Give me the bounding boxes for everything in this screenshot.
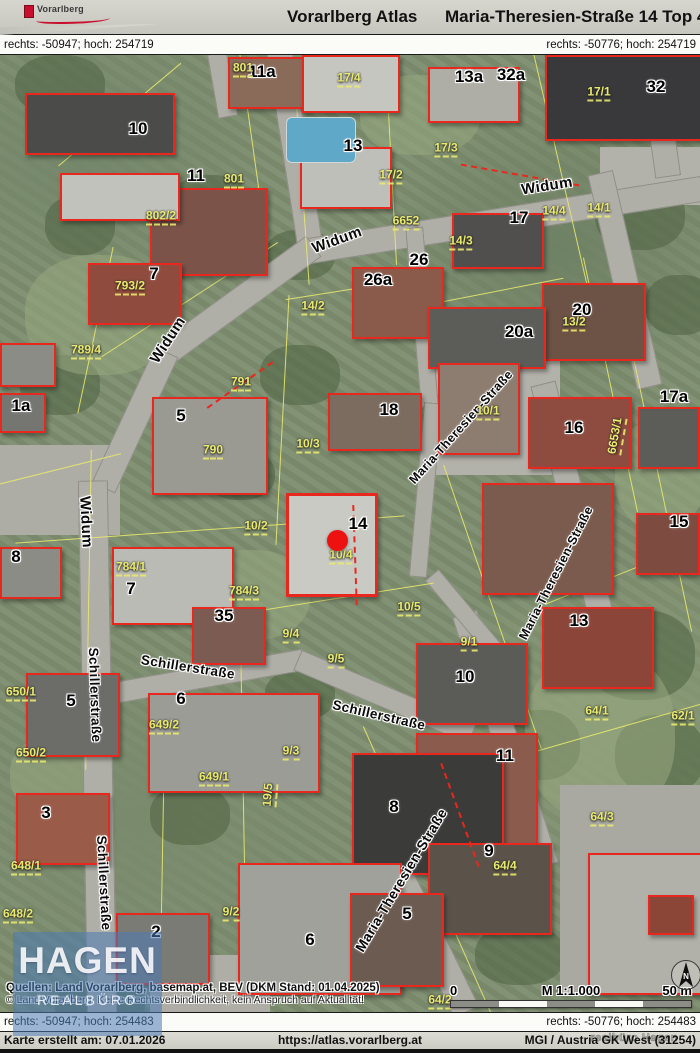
house-number-label: 17 [510, 208, 529, 228]
parcel-number-label: 64/2 [428, 993, 451, 1010]
parcel-number-label: 10/3 [296, 437, 319, 454]
building [638, 407, 700, 469]
building [25, 93, 175, 155]
logo-swoosh-icon [36, 15, 110, 24]
window-bottom-border [0, 1049, 700, 1053]
house-number-label: 11 [496, 746, 514, 766]
header: Vorarlberg Vorarlberg Atlas Maria-Theres… [0, 0, 700, 35]
parcel-number-label: 6652 [393, 214, 420, 231]
parcel-number-label: 648/2 [3, 907, 33, 924]
parcel-number-label: 801 [224, 172, 244, 189]
house-number-label: 8 [389, 797, 398, 817]
house-number-label: 11 [187, 166, 205, 186]
house-number-label: 18 [380, 400, 399, 420]
hagen-realbuero-watermark: HAGEN REALBÜRO [13, 932, 162, 1036]
parcel-number-label: 13/2 [562, 315, 585, 332]
house-number-label: 26 [410, 250, 429, 270]
coord-top-left: rechts: -50947; hoch: 254719 [4, 39, 154, 51]
scale-ratio-label: M 1:1.000 [450, 983, 692, 998]
parcel-number-label: 9/5 [328, 652, 345, 669]
coordinate-bar-top: rechts: -50947; hoch: 254719 rechts: -50… [0, 35, 700, 55]
house-number-label: 5 [176, 406, 185, 426]
house-number-label: 15 [670, 512, 689, 532]
house-number-label: 3 [41, 803, 50, 823]
building [0, 343, 56, 387]
parcel-number-label: 649/1 [199, 770, 229, 787]
logo-banner: Vorarlberg [0, 0, 280, 35]
parcel-number-label: 64/3 [590, 810, 613, 827]
parcel-number-label: 64/4 [493, 859, 516, 876]
app-title: Vorarlberg Atlas [287, 7, 417, 27]
north-arrow-icon: N [670, 958, 700, 996]
vegetation [645, 275, 700, 335]
parcel-number-label: 10/2 [244, 519, 267, 536]
scale-bar: 0 M 1:1.000 50 m [450, 983, 692, 1008]
building [328, 393, 422, 451]
house-number-label: 35 [215, 606, 234, 626]
parcel-number-label: 790 [203, 443, 223, 460]
parcel-number-label: 17/1 [587, 85, 610, 102]
house-number-label: 13a [455, 67, 483, 87]
parcel-number-label: 9/3 [283, 744, 300, 761]
coord-bottom-right: rechts: -50776; hoch: 254483 [546, 1016, 696, 1028]
house-number-label: 10 [129, 119, 148, 139]
house-number-label: 7 [149, 264, 158, 284]
parcel-number-label: 791 [231, 375, 251, 392]
parcel-number-label: 784/1 [116, 560, 146, 577]
parcel-number-label: 650/2 [16, 746, 46, 763]
building [542, 283, 646, 361]
parcel-number-label: 648/1 [11, 859, 41, 876]
parcel-number-label: 9/1 [461, 635, 478, 652]
parcel-number-label: 650/1 [6, 685, 36, 702]
house-number-label: 5 [402, 904, 411, 924]
parcel-number-label: 793/2 [115, 279, 145, 296]
building [648, 895, 694, 935]
house-number-label: 9 [484, 841, 493, 861]
building [26, 673, 120, 757]
parcel-number-label: 789/4 [71, 343, 101, 360]
house-number-label: 26a [364, 270, 392, 290]
parcel-number-label: 801 [233, 61, 253, 78]
logo-text: Vorarlberg [37, 4, 84, 14]
house-number-label: 8 [11, 547, 20, 567]
house-number-label: 10 [456, 667, 475, 687]
parcel-number-label: 14/3 [449, 234, 472, 251]
parcel-number-label: 10/5 [397, 600, 420, 617]
watermark-realbuero-text: REALBÜRO [13, 992, 162, 1008]
parcel-number-label: 17/3 [434, 141, 457, 158]
building [542, 607, 654, 689]
parcel-number-label: 10/1 [476, 404, 499, 421]
house-number-label: 6 [176, 689, 185, 709]
parcel-number-label: 17/2 [379, 168, 402, 185]
house-number-label: 16 [565, 418, 584, 438]
house-number-label: 14 [349, 514, 368, 534]
parcel-number-label: 19/5 [260, 783, 279, 808]
house-number-label: 5 [66, 691, 75, 711]
parcel-number-label: 64/1 [585, 704, 608, 721]
watermark-hagen-text: HAGEN [13, 940, 162, 982]
north-n-label: N [683, 972, 689, 981]
street-name-label: Widum [76, 496, 96, 549]
house-number-label: 13 [344, 136, 363, 156]
parcel-number-label: 14/4 [542, 204, 565, 221]
house-number-label: 17a [660, 387, 688, 407]
map-canvas[interactable]: Quellen: Land Vorarlberg, basemap.at, BE… [0, 55, 700, 1012]
building [0, 547, 62, 599]
parcel-number-label: 9/4 [283, 627, 300, 644]
house-number-label: 7 [126, 579, 135, 599]
location-marker [327, 530, 348, 551]
house-number-label: 6 [305, 930, 314, 950]
parcel-number-label: 17/4 [337, 71, 360, 88]
page-title: Maria-Theresien-Straße 14 Top 4 [445, 7, 700, 27]
footer-crs: MGI / Austria GK West (31254) [525, 1033, 696, 1047]
coord-top-right: rechts: -50776; hoch: 254719 [546, 39, 696, 51]
parcel-number-label: 14/1 [587, 201, 610, 218]
house-number-label: 32a [497, 65, 525, 85]
parcel-number-label: 784/3 [229, 584, 259, 601]
atlas-window: Vorarlberg Vorarlberg Atlas Maria-Theres… [0, 0, 700, 1053]
vorarlberg-logo[interactable]: Vorarlberg [24, 4, 84, 22]
building [636, 513, 700, 575]
parcel-number-label: 14/2 [301, 299, 324, 316]
house-number-label: 13 [570, 611, 589, 631]
parcel-number-label: 62/1 [671, 709, 694, 726]
scale-bar-segments [450, 1000, 692, 1008]
parcel-number-label: 802/2 [146, 209, 176, 226]
house-number-label: 1a [12, 396, 31, 416]
vorarlberg-shield-icon [24, 5, 34, 18]
building [545, 55, 700, 141]
house-number-label: 20a [505, 322, 533, 342]
parcel-number-label: 649/2 [149, 718, 179, 735]
house-number-label: 32 [647, 77, 666, 97]
parcel-number-label: 9/2 [223, 905, 240, 922]
